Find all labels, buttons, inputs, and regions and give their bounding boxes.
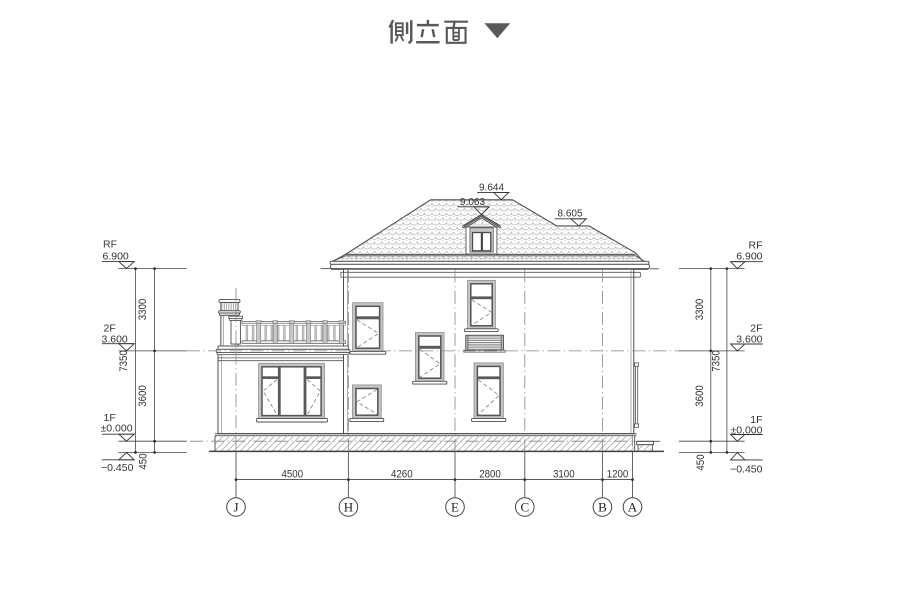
svg-text:J: J <box>233 500 238 515</box>
svg-text:±0.000: ±0.000 <box>730 425 762 437</box>
svg-text:1200: 1200 <box>607 468 629 480</box>
svg-text:6.900: 6.900 <box>736 251 762 263</box>
svg-text:B: B <box>598 500 607 515</box>
svg-text:−0.450: −0.450 <box>730 464 763 476</box>
svg-text:7350: 7350 <box>118 350 130 372</box>
svg-text:8.605: 8.605 <box>558 209 583 220</box>
svg-text:2F: 2F <box>750 323 762 335</box>
svg-text:3300: 3300 <box>137 299 149 321</box>
svg-text:7350: 7350 <box>711 350 723 372</box>
svg-text:2800: 2800 <box>479 468 501 480</box>
svg-text:E: E <box>451 500 459 515</box>
svg-text:450: 450 <box>695 454 707 470</box>
svg-text:A: A <box>628 500 638 515</box>
svg-text:3100: 3100 <box>553 468 575 480</box>
svg-text:450: 450 <box>138 453 150 469</box>
svg-text:4260: 4260 <box>391 468 413 480</box>
svg-text:−0.450: −0.450 <box>101 462 134 474</box>
svg-text:3600: 3600 <box>694 385 706 407</box>
svg-text:9.644: 9.644 <box>479 183 504 194</box>
svg-text:H: H <box>344 500 353 515</box>
svg-text:±0.000: ±0.000 <box>101 423 133 435</box>
svg-text:4500: 4500 <box>282 468 304 480</box>
svg-text:9.063: 9.063 <box>460 197 485 208</box>
svg-text:3300: 3300 <box>694 299 706 321</box>
svg-text:RF: RF <box>103 239 117 251</box>
svg-text:3.600: 3.600 <box>102 333 128 345</box>
svg-text:3.600: 3.600 <box>736 334 762 346</box>
svg-text:3600: 3600 <box>137 385 149 407</box>
svg-text:C: C <box>520 500 529 515</box>
svg-text:6.900: 6.900 <box>103 250 129 262</box>
